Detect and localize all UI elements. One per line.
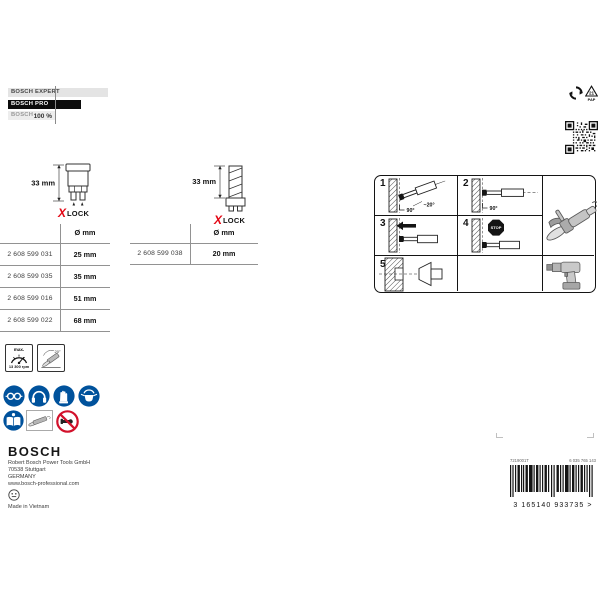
max-label: max. (14, 347, 24, 352)
recycling-triangle-icon: 21 PAP (585, 85, 598, 102)
grinder-angle-label: 20° (55, 348, 61, 353)
bosch-logo: BOSCH (8, 444, 61, 459)
diameter-header: Ø mm (60, 228, 110, 237)
product-table-2: Ø mm 2 608 599 038 20 mm (130, 224, 258, 264)
table-row: 2 608 599 031 25 mm (0, 243, 110, 265)
step4-drawing: STOP (458, 216, 542, 255)
table-row: 2 608 599 022 68 mm (0, 309, 110, 331)
diameter-cell: 25 mm (60, 250, 110, 259)
stop-label: STOP (491, 225, 502, 230)
packaging-back-panel: BOSCH EXPERT BOSCH PRO BOSCH 100 % 21 PA… (0, 0, 600, 600)
base-angle-label: 90° (490, 206, 498, 212)
no-handheld-prohibition-icon (56, 410, 79, 433)
diameter-cell: 20 mm (190, 249, 258, 258)
made-in-label: Made in Vietnam (8, 504, 49, 510)
hand-protection-icon (53, 385, 75, 407)
barcode-block: 7219001T 6 035 765 143 3 1 (508, 458, 598, 509)
table-row: 2 608 599 016 51 mm (0, 287, 110, 309)
table-row: 2 608 599 035 35 mm (0, 265, 110, 287)
ean-barcode (508, 465, 594, 497)
diameter-cell: 68 mm (60, 316, 110, 325)
diameter-cell: 51 mm (60, 294, 110, 303)
product-table-1: Ø mm 2 608 599 031 25 mm 2 608 599 035 3… (0, 224, 110, 332)
benchmark-line (55, 86, 56, 124)
max-speed-box: max. 13 300 rpm (5, 344, 33, 372)
website-link: www.bosch-professional.com (8, 481, 79, 488)
diameter-header: Ø mm (190, 228, 258, 237)
sku-cell: 2 608 599 022 (0, 317, 60, 324)
qr-code (565, 121, 598, 154)
green-dot-icon (569, 86, 583, 100)
grinder-angle-icon: 20° (39, 347, 63, 370)
recycling-code: PAP (588, 97, 596, 102)
adapter-illustration: 33 mm (28, 160, 108, 208)
xlock-lock: LOCK (67, 209, 89, 218)
address-line: Robert Bosch Power Tools GmbH (8, 460, 90, 467)
max-rpm-value: 13 300 rpm (9, 365, 29, 370)
read-instructions-icon (3, 410, 24, 431)
step1-drawing: ~20° 90° (375, 176, 457, 215)
table-row: 2 608 599 038 20 mm (130, 243, 258, 264)
crop-mark (496, 433, 503, 438)
grinder-angle-box: 20° (37, 344, 65, 372)
step3-drawing (375, 216, 457, 255)
diameter-cell: 35 mm (60, 272, 110, 281)
respiratory-protection-icon (78, 385, 100, 407)
sku-cell: 2 608 599 035 (0, 273, 60, 280)
benchmark-label: 100 % (18, 113, 52, 120)
sku-cell: 2 608 599 038 (130, 250, 190, 257)
ear-protection-icon (28, 385, 50, 407)
address-line: 70538 Stuttgart (8, 467, 46, 474)
approach-angle-label: ~20° (424, 203, 435, 209)
length-label: 33 mm (192, 177, 216, 186)
barcode-right-code: 6 035 765 143 (569, 458, 596, 463)
barcode-left-code: 7219001T (510, 458, 529, 463)
ean-digits: 3 165140 933735 > (508, 502, 598, 509)
xlock-x: X (58, 208, 66, 218)
drill-bit-illustration: 33 mm (185, 162, 260, 214)
xlock-logo: XLOCK (58, 208, 89, 218)
step2-drawing: 90° (458, 176, 542, 215)
cordless-drill-image (543, 256, 597, 292)
speedometer-icon (9, 352, 29, 364)
certification-mark-icon (8, 489, 20, 501)
step5-drawing (375, 256, 457, 293)
angle-grinder-image (543, 177, 597, 254)
instruction-panel: 1 ~20° 90° 2 90° (374, 175, 596, 293)
brand-bar-pro: BOSCH PRO (8, 100, 81, 109)
recycling-number: 21 (589, 90, 595, 95)
crop-mark (587, 433, 594, 438)
length-label: 33 mm (31, 179, 55, 188)
base-angle-label: 90° (407, 208, 415, 214)
angle-grinder-thumbnail (26, 410, 53, 431)
sku-cell: 2 608 599 016 (0, 295, 60, 302)
address-line: GERMANY (8, 474, 36, 481)
brand-bar-expert: BOSCH EXPERT (8, 88, 108, 97)
sku-cell: 2 608 599 031 (0, 251, 60, 258)
eye-protection-icon (3, 385, 25, 407)
